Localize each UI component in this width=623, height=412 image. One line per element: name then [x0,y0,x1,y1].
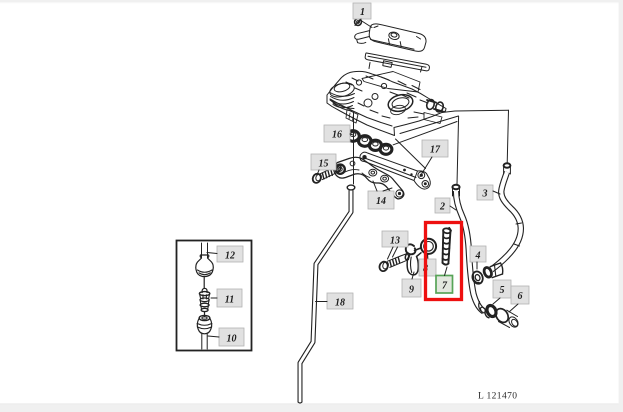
svg-text:10: 10 [227,334,237,345]
svg-text:14: 14 [376,196,386,207]
svg-text:16: 16 [332,130,342,141]
svg-text:15: 15 [319,159,329,170]
svg-text:9: 9 [409,285,414,296]
svg-text:17: 17 [430,145,441,156]
svg-text:2: 2 [439,202,445,213]
svg-text:18: 18 [335,298,345,309]
svg-text:5: 5 [500,285,505,296]
svg-text:12: 12 [225,251,235,262]
svg-text:1: 1 [360,7,365,18]
svg-text:L 121470: L 121470 [478,392,517,402]
svg-text:6: 6 [518,291,523,302]
svg-text:3: 3 [482,189,488,200]
svg-text:11: 11 [225,295,234,306]
svg-text:4: 4 [475,251,481,262]
svg-text:13: 13 [390,236,400,247]
